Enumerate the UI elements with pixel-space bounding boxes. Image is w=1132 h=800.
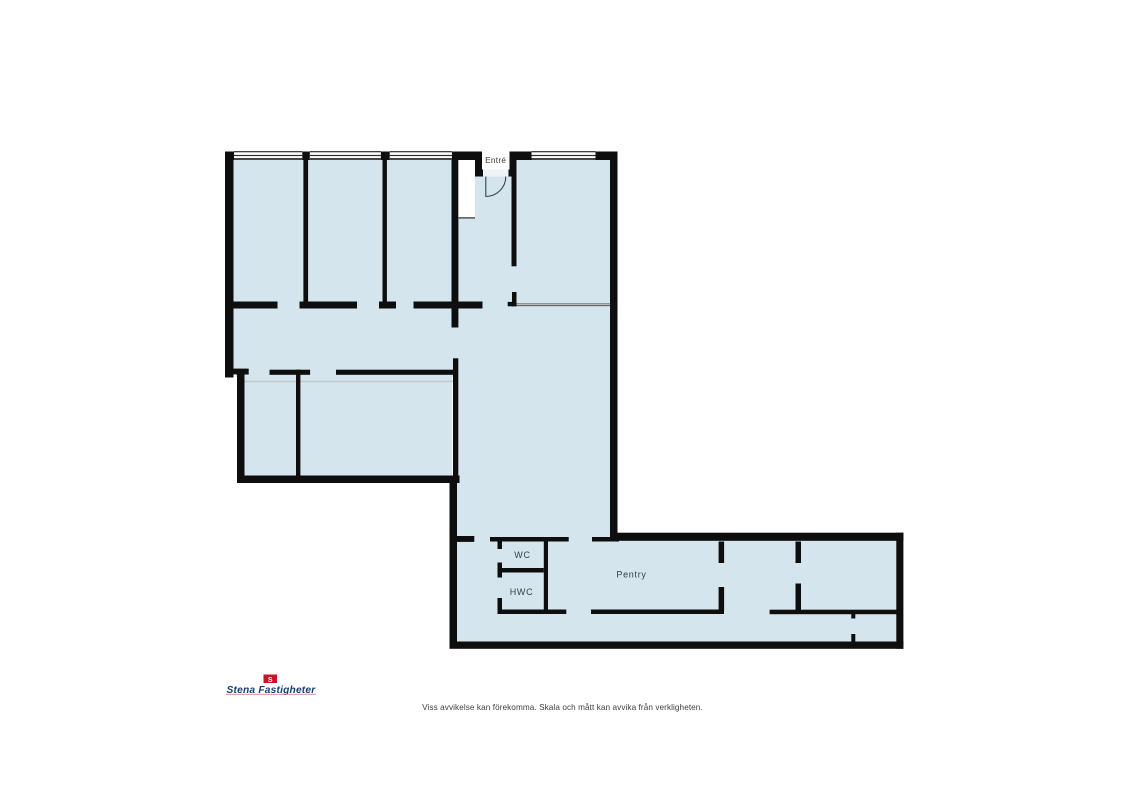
svg-text:Pentry: Pentry: [616, 570, 646, 580]
svg-text:S: S: [268, 677, 273, 684]
svg-text:Viss avvikelse kan förekomma.: Viss avvikelse kan förekomma. Skala och …: [422, 702, 703, 712]
svg-text:HWC: HWC: [510, 587, 534, 597]
svg-text:Entré: Entré: [485, 156, 506, 165]
svg-text:WC: WC: [514, 550, 530, 560]
